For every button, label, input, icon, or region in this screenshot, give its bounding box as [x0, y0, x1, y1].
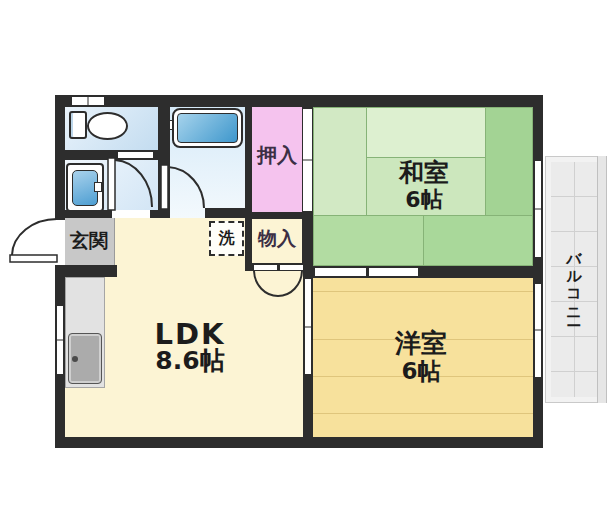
wall-wash-hall-a [65, 210, 112, 218]
balcony-fence [597, 156, 607, 403]
window-right-yoshitsu [534, 283, 542, 378]
window-left-ldk [56, 305, 64, 375]
washing-machine-area: 洗 [209, 221, 244, 256]
window-top-toilet [71, 96, 105, 106]
monoire-door-panel [279, 264, 304, 271]
tatami-mat [313, 215, 424, 266]
wall-outer-bottom [55, 437, 543, 448]
washitsu-size-label: 6帖 [354, 188, 494, 211]
toilet-door-panel [117, 151, 154, 159]
balcony-label: バルコニー [553, 218, 581, 343]
tatami-mat [366, 107, 486, 158]
yoshitsu-sliding-door [304, 278, 312, 375]
washitsu-sliding-door [314, 267, 367, 277]
washbasin-faucet-icon [94, 182, 102, 192]
floorplan-canvas: 洗 [0, 0, 614, 531]
oshiire-label: 押入 [250, 145, 304, 166]
yoshitsu-name-label: 洋室 [351, 330, 491, 357]
toilet-tank-icon [69, 111, 87, 139]
kitchen-faucet-icon [72, 356, 78, 362]
wall-outer-top [55, 95, 543, 107]
monoire-label: 物入 [250, 229, 304, 249]
wall-genkan-stub [55, 265, 117, 277]
toilet-icon [87, 112, 128, 140]
ldk-name-label: LDK [120, 319, 260, 349]
wall-bath-left [158, 107, 170, 218]
genkan-label: 玄関 [63, 231, 115, 251]
tatami-mat [423, 215, 533, 266]
wall-wash-hall-b [150, 210, 158, 218]
wall-oshiire-monoire [245, 212, 303, 219]
washitsu-name-label: 和室 [354, 160, 494, 186]
window-right-washitsu [534, 160, 542, 258]
monoire-door-panel [253, 264, 278, 271]
yoshitsu-size-label: 6帖 [351, 359, 491, 383]
bathtub-water [177, 113, 238, 143]
ldk-size-label: 8.6帖 [120, 348, 260, 374]
washitsu-sliding-door [368, 267, 419, 277]
laundry-label: 洗 [219, 230, 235, 247]
wall-bath-hall [205, 208, 245, 218]
entry-door-arc [12, 219, 57, 255]
entry-door-leaf [10, 255, 57, 262]
